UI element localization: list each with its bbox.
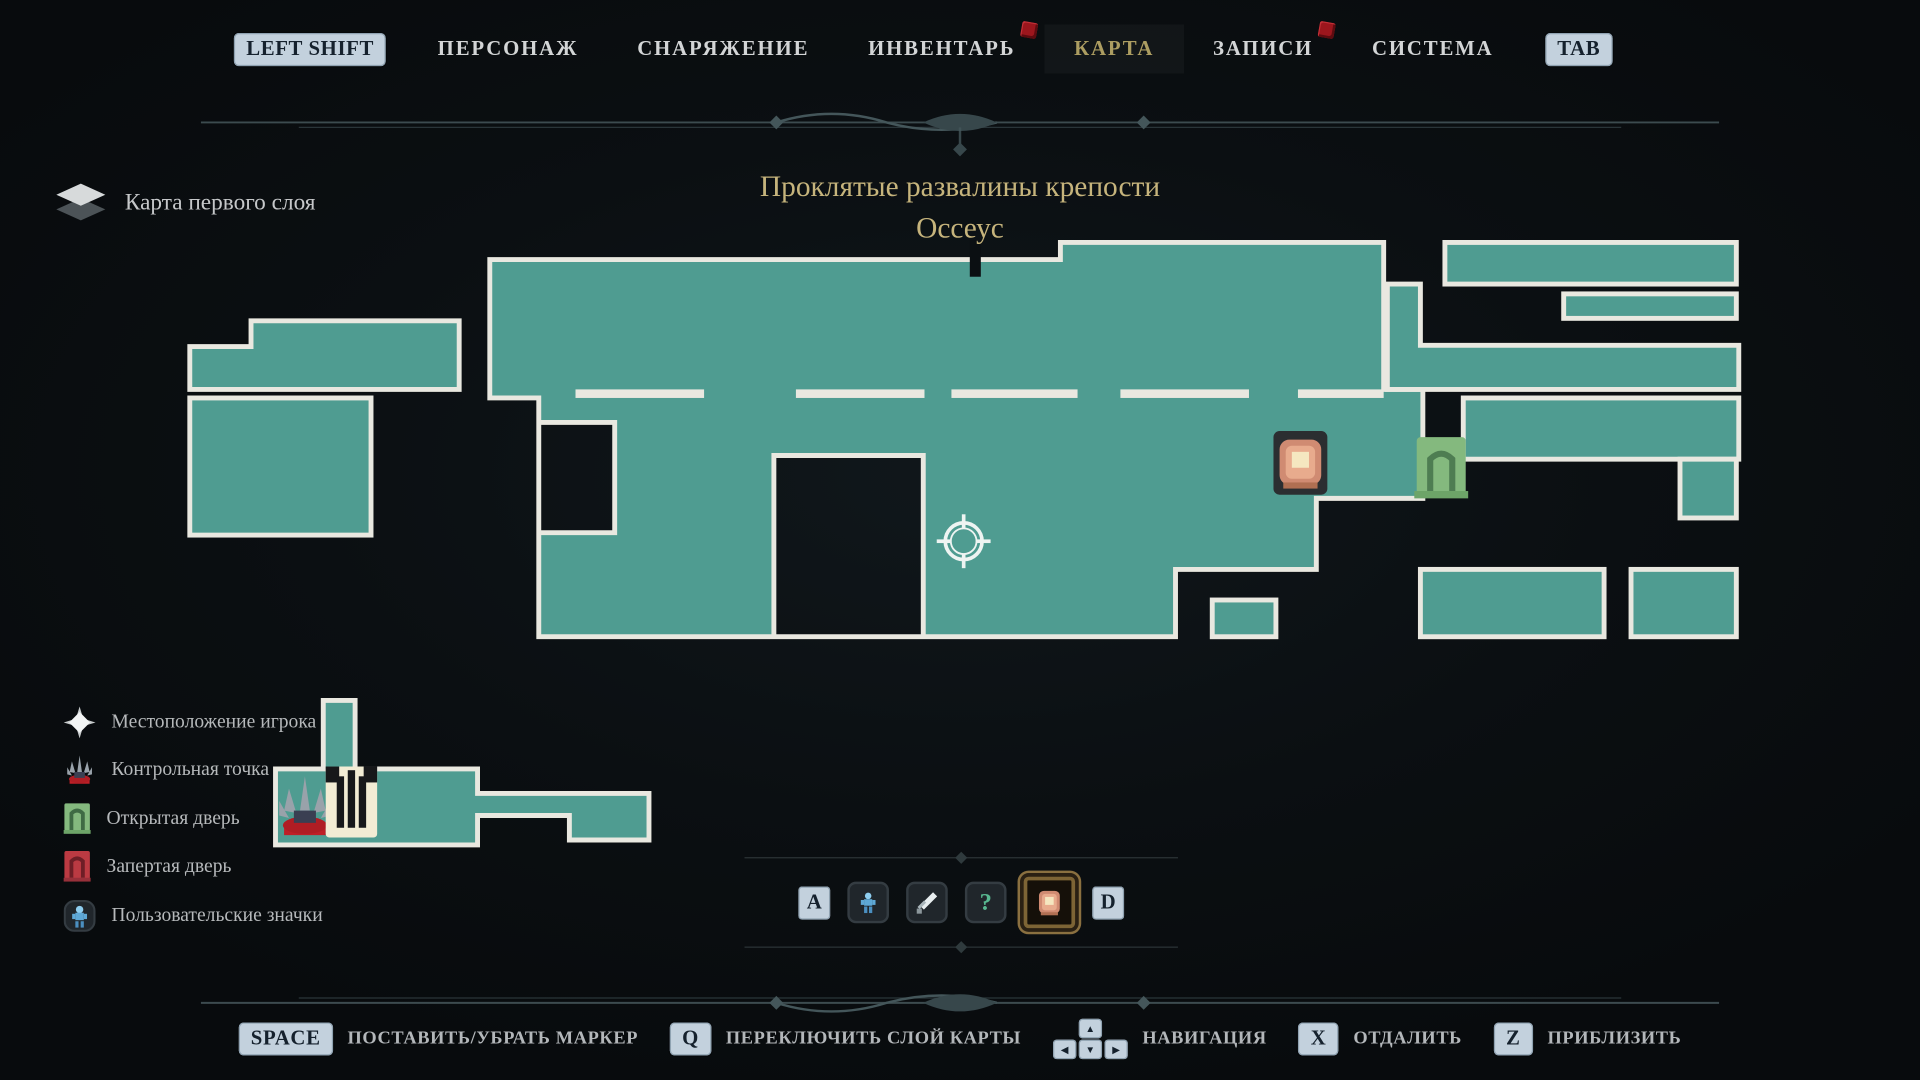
map-regions: [190, 242, 1739, 844]
marker-selector: A ? D: [744, 857, 1177, 948]
custom-marker-icon: [64, 899, 96, 931]
notification-badge-icon: [1318, 21, 1336, 39]
hint-label: ОТДАЛИТЬ: [1353, 1029, 1462, 1050]
sword-marker-button[interactable]: [906, 882, 948, 924]
z-keycap[interactable]: Z: [1494, 1022, 1533, 1055]
area-title-line1: Проклятые развалины крепости: [0, 167, 1920, 209]
marker-next-keycap[interactable]: D: [1092, 886, 1124, 919]
checkpoint-icon: [64, 754, 96, 786]
hint-switch-layer: Q ПЕРЕКЛЮЧИТЬ СЛОЙ КАРТЫ: [670, 1022, 1021, 1055]
map-region: [1631, 569, 1736, 636]
legend-label: Местоположение игрока: [111, 711, 316, 733]
hint-navigation: ▲ ◀ ▼ ▶ НАВИГАЦИЯ: [1053, 1019, 1267, 1059]
hint-label: ПОСТАВИТЬ/УБРАТЬ МАРКЕР: [348, 1029, 639, 1050]
map-region: [1420, 569, 1604, 636]
map-region: [1212, 600, 1276, 637]
tab-system[interactable]: СИСТЕМА: [1343, 24, 1523, 73]
q-keycap[interactable]: Q: [670, 1022, 711, 1055]
tab-notes[interactable]: ЗАПИСИ: [1184, 24, 1343, 73]
area-title-line2: Оссеус: [0, 208, 1920, 250]
map-region: [190, 398, 371, 535]
chest-marker-button[interactable]: [1024, 877, 1075, 928]
open-door-icon: [64, 803, 91, 835]
map-region: [1463, 398, 1739, 459]
legend-item-player: Местоположение игрока: [64, 705, 323, 738]
player-location-icon: [64, 706, 96, 738]
marker-prev-keycap[interactable]: A: [798, 886, 830, 919]
hint-zoom-in: Z ПРИБЛИЗИТЬ: [1494, 1022, 1682, 1055]
legend-label: Запертая дверь: [107, 856, 232, 878]
arrow-left-keycap[interactable]: ◀: [1053, 1040, 1076, 1060]
tab-map[interactable]: КАРТА: [1045, 24, 1184, 73]
hint-place-marker: SPACE ПОСТАВИТЬ/УБРАТЬ МАРКЕР: [239, 1022, 638, 1055]
map-screen: { "nav": { "left_key": "LEFT SHIFT", "ri…: [0, 0, 1920, 1080]
cycle-right-keycap[interactable]: TAB: [1545, 32, 1613, 65]
cycle-left-keycap[interactable]: LEFT SHIFT: [234, 32, 386, 65]
arrow-down-keycap[interactable]: ▼: [1079, 1040, 1102, 1060]
elevator-map-icon: [326, 767, 377, 838]
legend-item-open-door: Открытая дверь: [64, 802, 323, 835]
figure-marker-button[interactable]: [847, 882, 889, 924]
hint-label: ПРИБЛИЗИТЬ: [1547, 1029, 1681, 1050]
chest-marker-icon: [1035, 887, 1064, 919]
map-region: [190, 321, 459, 390]
hint-label: ПЕРЕКЛЮЧИТЬ СЛОЙ КАРТЫ: [726, 1029, 1021, 1050]
map-region: [1680, 459, 1736, 518]
legend-label: Пользовательские значки: [111, 904, 322, 926]
tab-character[interactable]: ПЕРСОНАЖ: [408, 24, 608, 73]
arrow-keys-icon[interactable]: ▲ ◀ ▼ ▶: [1053, 1019, 1128, 1059]
map-legend: Местоположение игрока Контрольная точка …: [64, 705, 323, 947]
legend-label: Контрольная точка: [111, 759, 269, 781]
question-marker-icon: ?: [980, 890, 992, 914]
notification-badge-icon: [1020, 21, 1038, 39]
tab-inventory[interactable]: ИНВЕНТАРЬ: [839, 24, 1045, 73]
hint-label: НАВИГАЦИЯ: [1142, 1029, 1266, 1050]
legend-label: Открытая дверь: [107, 808, 240, 830]
hint-zoom-out: X ОТДАЛИТЬ: [1299, 1022, 1462, 1055]
tab-inventory-label: ИНВЕНТАРЬ: [868, 37, 1015, 60]
space-keycap[interactable]: SPACE: [239, 1022, 333, 1055]
footer-hints: SPACE ПОСТАВИТЬ/УБРАТЬ МАРКЕР Q ПЕРЕКЛЮЧ…: [0, 1019, 1920, 1059]
legend-item-locked-door: Запертая дверь: [64, 850, 323, 883]
x-keycap[interactable]: X: [1299, 1022, 1339, 1055]
top-nav: LEFT SHIFT ПЕРСОНАЖ СНАРЯЖЕНИЕ ИНВЕНТАРЬ…: [0, 27, 1883, 71]
tab-equipment[interactable]: СНАРЯЖЕНИЕ: [608, 24, 839, 73]
ornate-divider: [201, 100, 1719, 156]
tab-notes-label: ЗАПИСИ: [1213, 37, 1313, 60]
sword-marker-icon: [915, 890, 939, 914]
chest-map-icon: [1273, 431, 1327, 495]
arrow-up-keycap[interactable]: ▲: [1079, 1019, 1102, 1039]
figure-marker-icon: [856, 889, 880, 916]
map-region: [1564, 294, 1737, 318]
arrow-right-keycap[interactable]: ▶: [1104, 1040, 1127, 1060]
open-door-map-icon: [1414, 437, 1468, 498]
legend-item-checkpoint: Контрольная точка: [64, 754, 323, 787]
locked-door-icon: [64, 851, 91, 883]
question-marker-button[interactable]: ?: [965, 882, 1007, 924]
legend-item-custom-markers: Пользовательские значки: [64, 899, 323, 932]
area-title: Проклятые развалины крепости Оссеус: [0, 167, 1920, 250]
